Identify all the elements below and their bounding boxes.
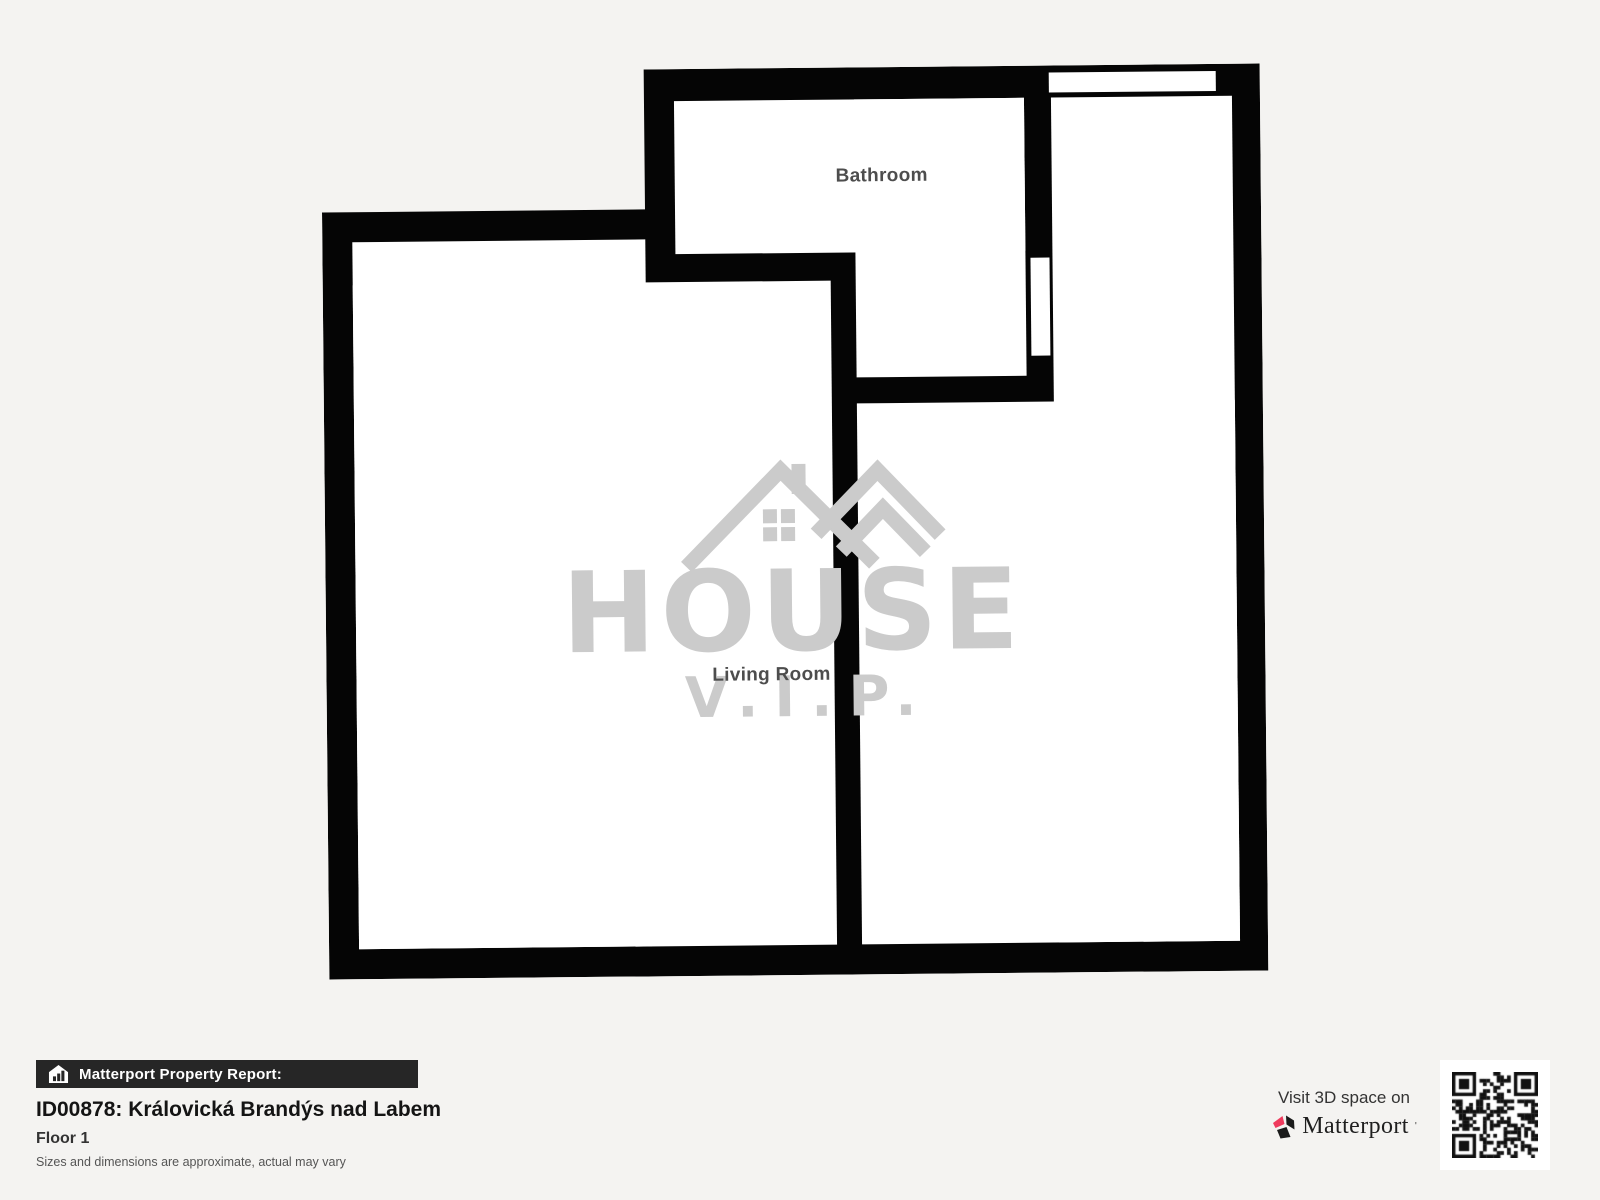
matterport-wordmark: Matterport xyxy=(1302,1113,1409,1140)
qr-code xyxy=(1452,1072,1538,1158)
house-window-icon xyxy=(763,509,795,541)
report-home-icon xyxy=(48,1064,69,1084)
trademark-mark: ' xyxy=(1415,1122,1417,1132)
door-opening xyxy=(1030,258,1050,356)
floor-plan: HOUSE V.I.P. Bathroom Living Room xyxy=(318,57,1275,986)
room-label-bathroom: Bathroom xyxy=(836,165,928,188)
qr-code-box xyxy=(1440,1060,1550,1170)
bathroom-area-lower xyxy=(854,98,1027,378)
disclaimer-text: Sizes and dimensions are approximate, ac… xyxy=(36,1155,346,1169)
window-opening xyxy=(1049,71,1216,93)
matterport-logo: Matterport' xyxy=(1271,1113,1417,1140)
watermark-title: HOUSE xyxy=(460,561,1125,664)
watermark: HOUSE V.I.P. xyxy=(459,451,1126,730)
floor-label: Floor 1 xyxy=(36,1130,89,1148)
matterport-logo-icon xyxy=(1271,1114,1296,1140)
visit-3d-cta: Visit 3D space on Matterport' xyxy=(1256,1088,1432,1140)
property-title: ID00878: Královická Brandýs nad Labem xyxy=(36,1098,441,1122)
report-badge-bar: Matterport Property Report: xyxy=(36,1060,418,1088)
room-label-living-room: Living Room xyxy=(712,664,831,687)
visit-3d-label: Visit 3D space on xyxy=(1278,1088,1410,1108)
report-badge-label: Matterport Property Report: xyxy=(79,1066,282,1083)
